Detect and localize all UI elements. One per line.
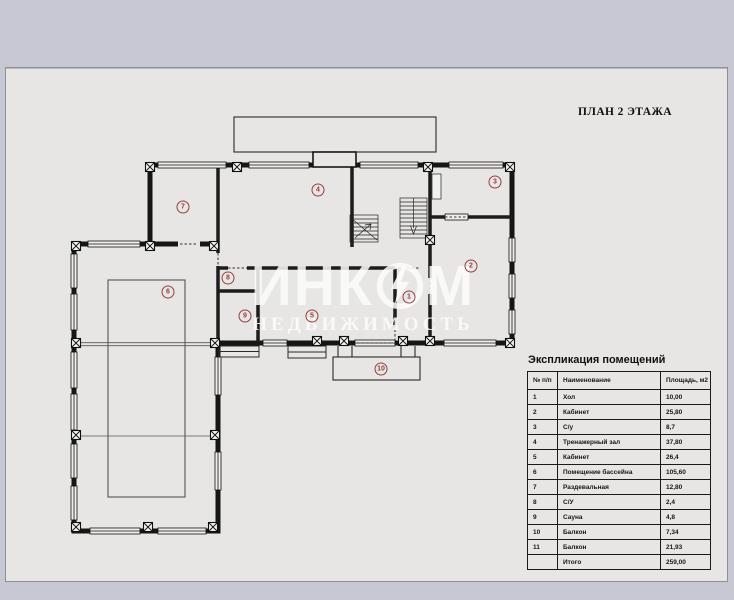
room-label-2: 2 xyxy=(465,260,478,273)
legend-cell-num: 4 xyxy=(528,435,558,450)
legend-cell-area: 12,80 xyxy=(661,480,711,495)
legend-row: 6Помещение бассейна105,60 xyxy=(528,465,711,480)
legend-cell-num: 11 xyxy=(528,540,558,555)
legend-table: № п/п Наименование Площадь, м2 1Хол10,00… xyxy=(527,371,711,570)
legend-cell-num: 2 xyxy=(528,405,558,420)
room-label-9: 9 xyxy=(239,310,252,323)
legend-cell-name: Сауна xyxy=(558,510,661,525)
legend-cell-area: 4,8 xyxy=(661,510,711,525)
legend-cell-num: 8 xyxy=(528,495,558,510)
room-label-7: 7 xyxy=(177,201,190,214)
legend-cell-area: 105,60 xyxy=(661,465,711,480)
legend-row: 4Тренажерный зал37,80 xyxy=(528,435,711,450)
legend-cell-name: Кабинет xyxy=(558,450,661,465)
legend-row: 5Кабинет26,4 xyxy=(528,450,711,465)
page: { "title": "ПЛАН 2 ЭТАЖА", "watermark": … xyxy=(0,0,734,600)
legend-cell-num xyxy=(528,555,558,570)
legend-cell-area: 26,4 xyxy=(661,450,711,465)
staircase xyxy=(350,174,441,242)
room-label-3: 3 xyxy=(489,176,502,189)
legend-row: 1Хол10,00 xyxy=(528,390,711,405)
legend-cell-name: Кабинет xyxy=(558,405,661,420)
legend-cell-name: Итого xyxy=(558,555,661,570)
legend-header-row: № п/п Наименование Площадь, м2 xyxy=(528,372,711,390)
legend-cell-name: Хол xyxy=(558,390,661,405)
room-label-8: 8 xyxy=(222,272,235,285)
legend-cell-name: Тренажерный зал xyxy=(558,435,661,450)
legend-row: 8С/У2,4 xyxy=(528,495,711,510)
legend-cell-area: 10,00 xyxy=(661,390,711,405)
room-label-4: 4 xyxy=(312,184,325,197)
room-label-1: 1 xyxy=(403,291,416,304)
pool-basin xyxy=(77,280,215,497)
legend-title: Экспликация помещений xyxy=(528,354,711,366)
legend-cell-area: 21,93 xyxy=(661,540,711,555)
balcony-top xyxy=(234,117,436,152)
legend-cell-num: 5 xyxy=(528,450,558,465)
interior-walls xyxy=(218,165,512,343)
entrance-porch xyxy=(313,152,356,167)
legend-row: 10Балкон7,34 xyxy=(528,525,711,540)
legend: Экспликация помещений № п/п Наименование… xyxy=(527,354,711,570)
legend-header-name: Наименование xyxy=(558,372,661,390)
legend-table-body: 1Хол10,002Кабинет25,803С/у8,74Тренажерны… xyxy=(528,390,711,570)
legend-row: 7Раздевальная12,80 xyxy=(528,480,711,495)
legend-cell-num: 6 xyxy=(528,465,558,480)
legend-cell-area: 25,80 xyxy=(661,405,711,420)
legend-cell-area: 259,00 xyxy=(661,555,711,570)
legend-cell-num: 3 xyxy=(528,420,558,435)
legend-cell-name: Балкон xyxy=(558,540,661,555)
legend-cell-num: 9 xyxy=(528,510,558,525)
legend-cell-num: 1 xyxy=(528,390,558,405)
legend-cell-area: 8,7 xyxy=(661,420,711,435)
legend-cell-num: 10 xyxy=(528,525,558,540)
entry-steps xyxy=(219,346,326,358)
legend-cell-name: Балкон xyxy=(558,525,661,540)
room-label-10: 10 xyxy=(375,363,388,376)
legend-cell-area: 7,34 xyxy=(661,525,711,540)
legend-cell-name: С/У xyxy=(558,495,661,510)
legend-header-num: № п/п xyxy=(528,372,558,390)
legend-cell-area: 37,80 xyxy=(661,435,711,450)
plan-title: ПЛАН 2 ЭТАЖА xyxy=(578,106,672,118)
legend-cell-num: 7 xyxy=(528,480,558,495)
room-label-5: 5 xyxy=(306,310,319,323)
legend-cell-name: Раздевальная xyxy=(558,480,661,495)
legend-row: 3С/у8,7 xyxy=(528,420,711,435)
legend-row: 2Кабинет25,80 xyxy=(528,405,711,420)
legend-cell-name: Помещение бассейна xyxy=(558,465,661,480)
legend-cell-area: 2,4 xyxy=(661,495,711,510)
legend-cell-name: С/у xyxy=(558,420,661,435)
room-label-6: 6 xyxy=(162,286,175,299)
legend-row: 11Балкон21,93 xyxy=(528,540,711,555)
legend-row: Итого259,00 xyxy=(528,555,711,570)
legend-header-area: Площадь, м2 xyxy=(661,372,711,390)
legend-row: 9Сауна4,8 xyxy=(528,510,711,525)
